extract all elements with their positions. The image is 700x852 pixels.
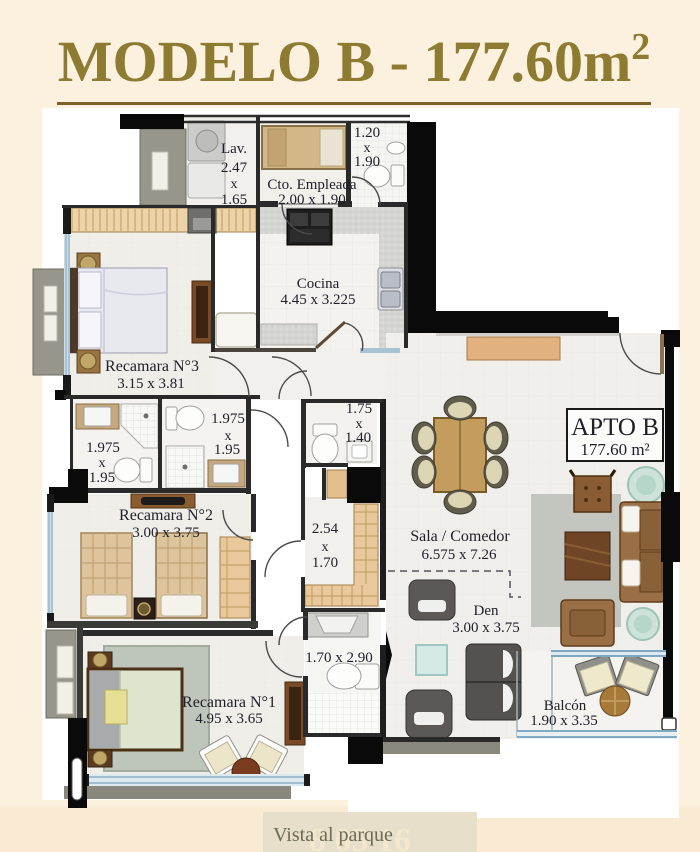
svg-text:Balcón: Balcón bbox=[544, 698, 587, 714]
svg-text:4.45 x 3.225: 4.45 x 3.225 bbox=[281, 292, 356, 308]
svg-text:1.975: 1.975 bbox=[86, 440, 120, 456]
svg-text:2.47: 2.47 bbox=[221, 160, 248, 176]
svg-text:Recamara N°2: Recamara N°2 bbox=[119, 507, 213, 524]
svg-text:Cocina: Cocina bbox=[297, 276, 340, 292]
svg-text:1.90 x 3.35: 1.90 x 3.35 bbox=[530, 713, 598, 729]
svg-text:Den: Den bbox=[474, 603, 499, 619]
svg-text:Recamara N°3: Recamara N°3 bbox=[105, 358, 199, 375]
svg-text:Vista al parque: Vista al parque bbox=[273, 824, 393, 846]
svg-text:1.75: 1.75 bbox=[346, 401, 372, 417]
svg-text:x: x bbox=[322, 540, 329, 555]
svg-text:Sala / Comedor: Sala / Comedor bbox=[410, 528, 510, 545]
svg-text:177.60 m²: 177.60 m² bbox=[580, 440, 649, 459]
svg-text:4.95 x 3.65: 4.95 x 3.65 bbox=[195, 711, 263, 727]
svg-text:Recamara N°1: Recamara N°1 bbox=[182, 694, 276, 711]
svg-text:Lav.: Lav. bbox=[221, 141, 247, 157]
svg-text:1.95: 1.95 bbox=[89, 470, 115, 486]
svg-text:1.95: 1.95 bbox=[214, 442, 240, 458]
svg-text:MODELO B - 177.60m2: MODELO B - 177.60m2 bbox=[58, 26, 651, 94]
svg-text:2.00 x 1.90: 2.00 x 1.90 bbox=[278, 192, 346, 208]
svg-text:2.54: 2.54 bbox=[312, 521, 339, 537]
svg-text:3.00 x 3.75: 3.00 x 3.75 bbox=[132, 525, 200, 541]
svg-text:1.975: 1.975 bbox=[211, 411, 245, 427]
svg-text:x: x bbox=[231, 177, 238, 192]
svg-text:3.15 x 3.81: 3.15 x 3.81 bbox=[117, 376, 185, 392]
svg-text:Cto. Empleada: Cto. Empleada bbox=[267, 177, 356, 193]
svg-text:1.20: 1.20 bbox=[354, 125, 380, 141]
svg-text:1.70: 1.70 bbox=[312, 555, 338, 571]
svg-text:1.65: 1.65 bbox=[221, 192, 247, 208]
svg-text:1.90: 1.90 bbox=[354, 154, 380, 170]
svg-text:1.70 x 2.90: 1.70 x 2.90 bbox=[305, 650, 373, 666]
svg-text:x: x bbox=[99, 456, 106, 471]
svg-text:6.575 x 7.26: 6.575 x 7.26 bbox=[422, 547, 498, 563]
svg-text:APTO B: APTO B bbox=[571, 414, 659, 441]
svg-text:3.00 x 3.75: 3.00 x 3.75 bbox=[452, 620, 520, 636]
svg-text:1.40: 1.40 bbox=[345, 430, 371, 446]
